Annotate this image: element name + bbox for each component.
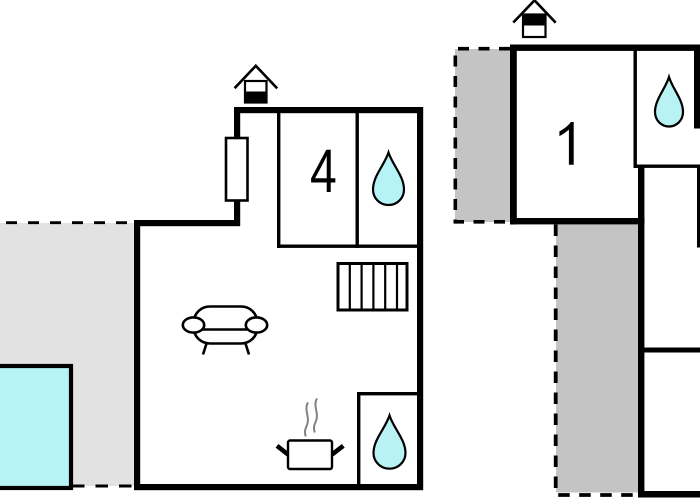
svg-text:4: 4: [310, 137, 337, 206]
